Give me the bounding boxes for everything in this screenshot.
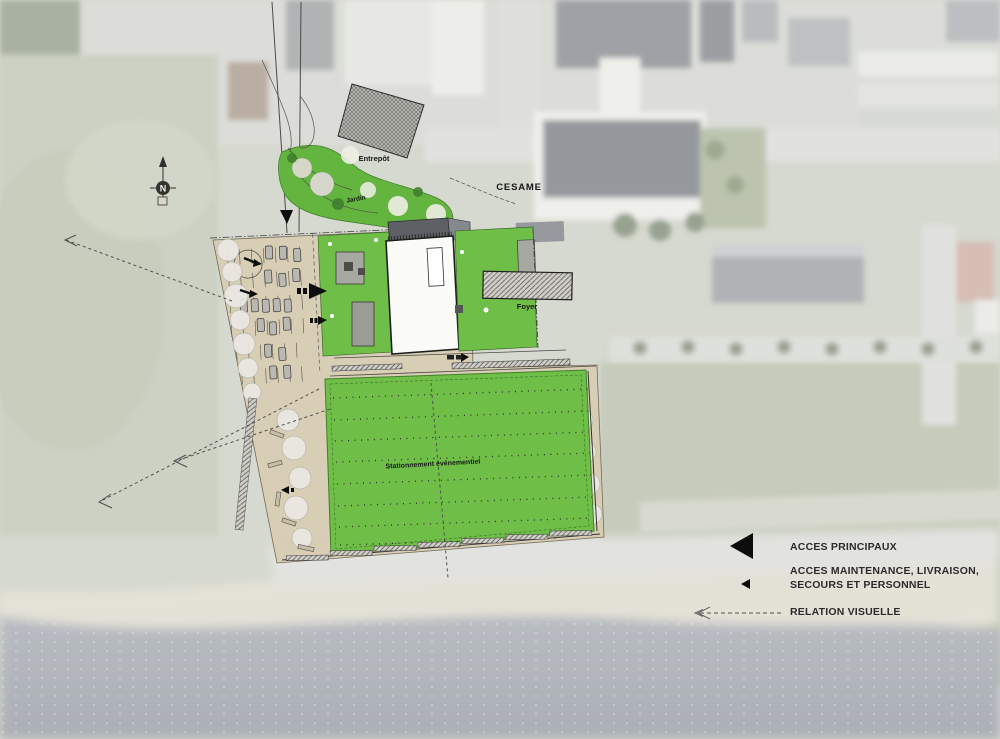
site-plan-canvas: N Entrepôt Jardin CESAME Foyer Stationne… bbox=[0, 0, 1000, 739]
service-access-legend-icon bbox=[740, 577, 751, 595]
main-access-north-arrow-icon bbox=[280, 210, 293, 224]
legend-label-acces-maintenance: ACCES MAINTENANCE, LIVRAISON, SECOURS ET… bbox=[790, 564, 979, 592]
entrepot-label: Entrepôt bbox=[359, 154, 390, 163]
masterplan-overlay: N Entrepôt Jardin CESAME Foyer Stationne… bbox=[0, 0, 1000, 739]
courtyard-area bbox=[318, 232, 393, 356]
legend-label-line1: ACCES MAINTENANCE, LIVRAISON, bbox=[790, 564, 979, 578]
north-arrow-icon: N bbox=[150, 156, 176, 205]
foyer-building bbox=[483, 271, 572, 300]
cesame-label: CESAME bbox=[496, 182, 541, 193]
foyer-label: Foyer bbox=[517, 302, 538, 311]
legend-label-relation-visuelle: RELATION VISUELLE bbox=[790, 605, 901, 619]
legend-label-acces-principaux: ACCES PRINCIPAUX bbox=[790, 540, 897, 554]
legend-label-line2: SECOURS ET PERSONNEL bbox=[790, 578, 979, 592]
north-label: N bbox=[160, 184, 167, 194]
main-access-legend-icon bbox=[728, 532, 754, 565]
relation-visuelle-legend-icon bbox=[692, 605, 787, 626]
